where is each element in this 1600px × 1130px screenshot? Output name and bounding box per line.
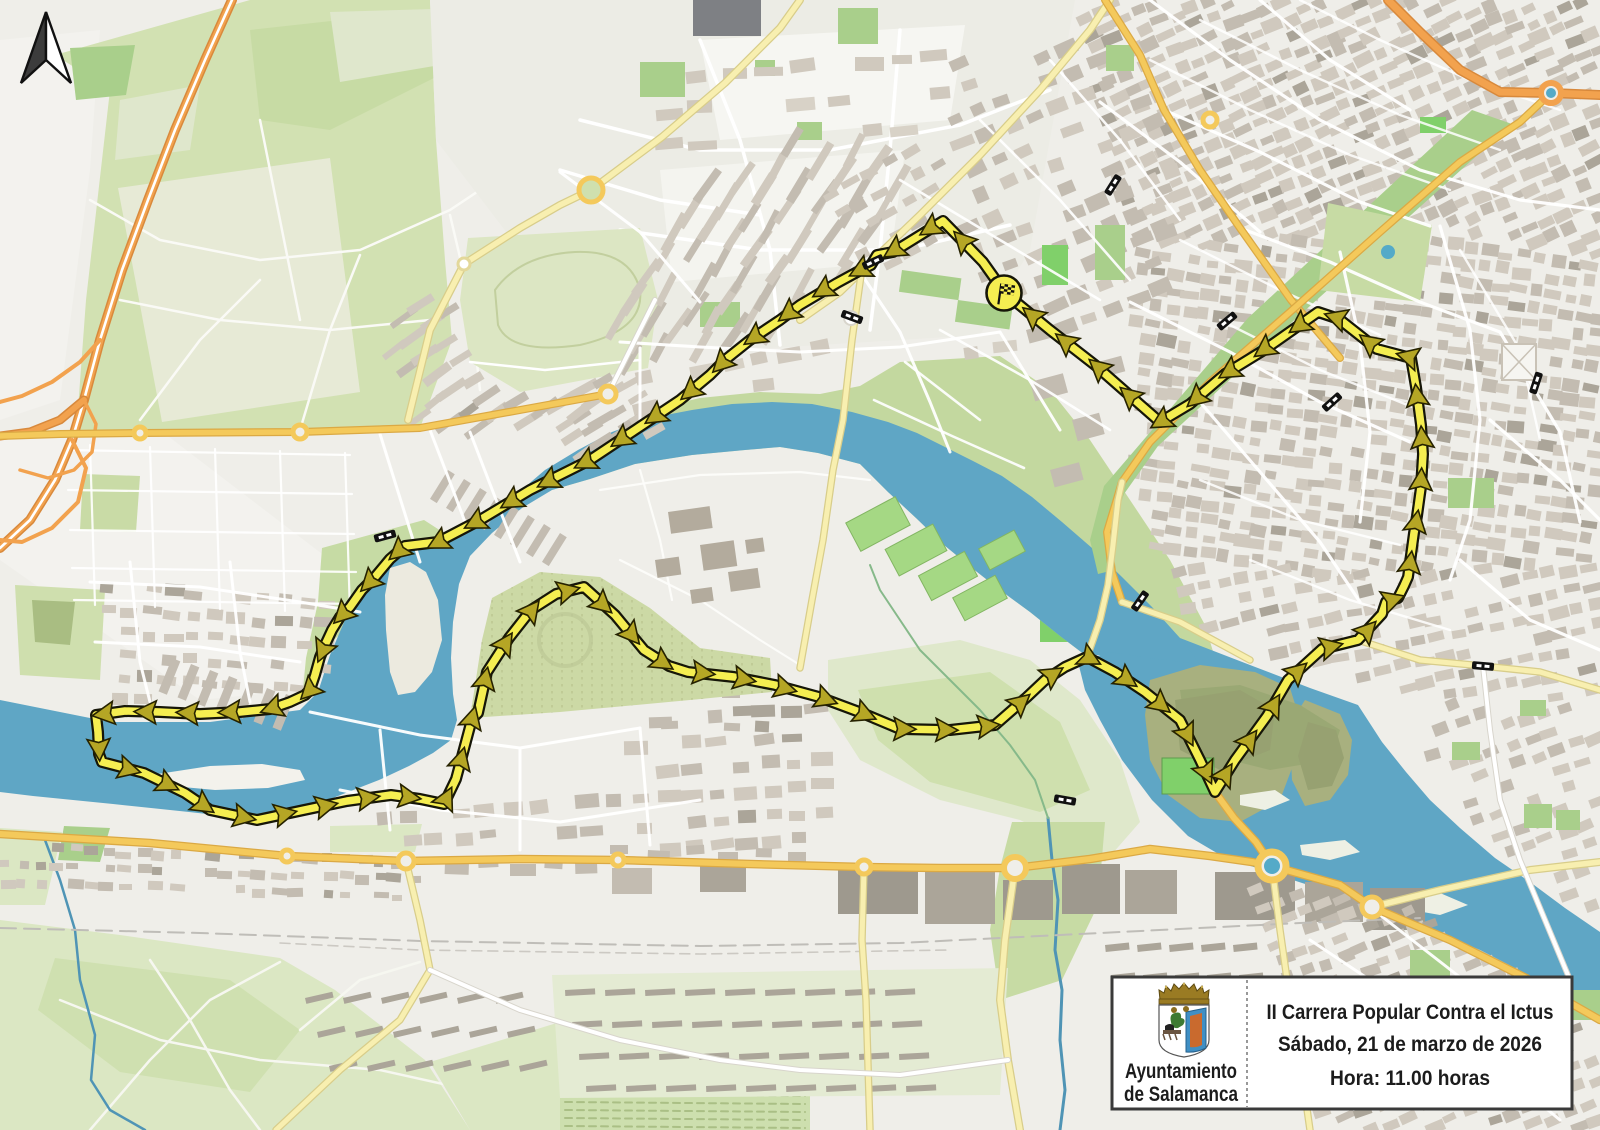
svg-text:de Salamanca: de Salamanca — [1124, 1083, 1238, 1106]
svg-text:Hora: 11.00 horas: Hora: 11.00 horas — [1330, 1067, 1490, 1090]
svg-text:Ayuntamiento: Ayuntamiento — [1125, 1060, 1237, 1083]
svg-text:II Carrera Popular Contra el I: II Carrera Popular Contra el Ictus — [1267, 1001, 1554, 1024]
svg-text:Sábado, 21 de marzo de 2026: Sábado, 21 de marzo de 2026 — [1278, 1033, 1542, 1056]
